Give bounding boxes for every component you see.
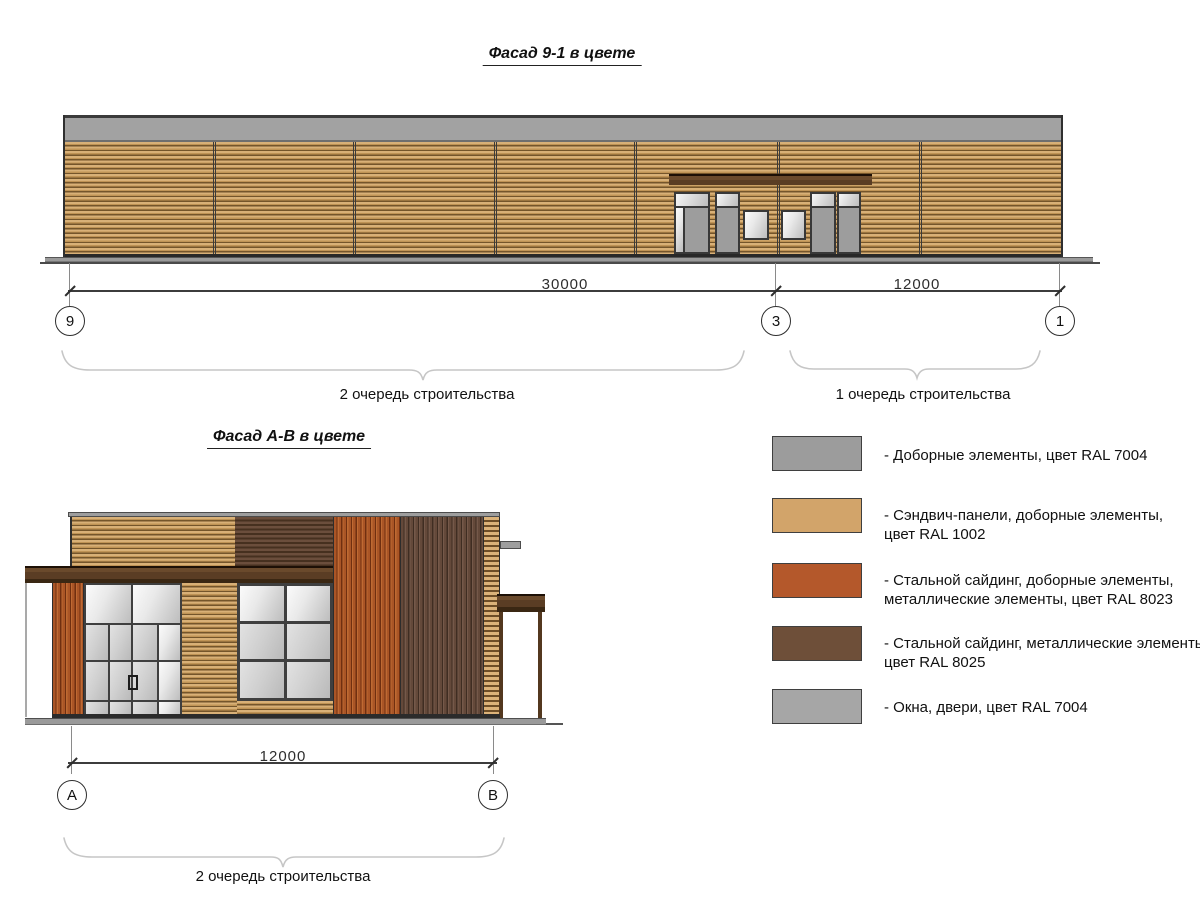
axis-bubble-3: 3 — [761, 306, 791, 336]
panel-joint — [213, 142, 216, 254]
phase-2-label: 2 очередь строительства — [153, 868, 413, 885]
axis-extension-line — [775, 263, 776, 306]
panel-joint — [919, 142, 922, 254]
axis-bubble-b: В — [478, 780, 508, 810]
axis-extension-line — [69, 263, 70, 306]
axis-bubble-a: А — [57, 780, 87, 810]
facade-ab-title: Фасад А-В в цвете — [207, 428, 371, 449]
tan-wall-strip — [182, 583, 237, 717]
glazing-pane — [86, 662, 108, 700]
legend-label: - Сэндвич-панели, доборные элементы, цве… — [884, 506, 1200, 544]
door-transom-glass — [676, 194, 708, 208]
entrance-door — [715, 192, 740, 254]
glazing-pane — [159, 662, 180, 700]
door-transom-glass — [717, 194, 738, 208]
legend-label: - Доборные элементы, цвет RAL 7004 — [884, 446, 1200, 465]
phase-2-brace — [62, 836, 506, 872]
window-pane — [240, 586, 284, 621]
phase-1-brace — [788, 349, 1042, 385]
ground-line — [40, 262, 1100, 264]
glazing-pane — [133, 625, 157, 660]
glazing-pane — [86, 585, 131, 623]
axis-extension-line — [1059, 263, 1060, 306]
window-pane — [287, 624, 330, 659]
axis-extension-line — [493, 726, 494, 774]
axis-extension-line — [71, 726, 72, 774]
panel-joint — [494, 142, 497, 254]
phase-2-label: 2 очередь строительства — [297, 386, 557, 403]
legend-swatch-ral1002 — [772, 498, 862, 533]
facade-ab-drawing — [0, 500, 600, 740]
legend-swatch-ral7004 — [772, 436, 862, 471]
window-pane — [240, 662, 284, 698]
orange-pilaster — [52, 583, 84, 717]
brown-fascia-band — [235, 517, 333, 566]
entrance-canopy — [25, 566, 333, 583]
glazing-pane — [86, 625, 108, 660]
glazing-pane — [159, 625, 180, 660]
tan-fascia-band — [70, 517, 235, 566]
porch-post — [499, 612, 503, 718]
small-window — [743, 210, 769, 240]
dark-brown-siding-section — [400, 517, 483, 717]
facade-91-title: Фасад 9-1 в цвете — [483, 45, 642, 66]
axis-bubble-1: 1 — [1045, 306, 1075, 336]
legend-label: - Стальной сайдинг, доборные элементы, м… — [884, 571, 1200, 609]
large-window — [237, 583, 333, 701]
gray-band-ral7004 — [65, 118, 1061, 142]
legend-swatch-ral8023 — [772, 563, 862, 598]
axis-bubble-9: 9 — [55, 306, 85, 336]
phase-2-brace — [60, 349, 746, 385]
legend-swatch-ral8025 — [772, 626, 862, 661]
entrance-door — [674, 192, 710, 254]
legend-label: - Стальной сайдинг, металлические элемен… — [884, 634, 1200, 672]
glazing-pane — [110, 625, 131, 660]
legend-label: - Окна, двери, цвет RAL 7004 — [884, 698, 1200, 717]
door-handle — [128, 675, 138, 690]
dim-label-12000: 12000 — [260, 748, 307, 765]
glazing-pane — [133, 585, 180, 623]
small-window — [781, 210, 806, 240]
window-pane — [287, 662, 330, 698]
ground-line — [546, 723, 563, 725]
door-sidelight — [676, 208, 685, 252]
canopy-post — [25, 583, 27, 717]
entrance-canopy — [669, 174, 872, 185]
ground-strip — [25, 718, 546, 725]
porch-post — [538, 612, 542, 718]
drawing-canvas: Фасад 9-1 в цвете — [0, 0, 1200, 900]
porch-canopy — [497, 594, 545, 612]
door-transom-glass — [839, 194, 859, 208]
window-pane — [240, 624, 284, 659]
corner-trim-ladder — [483, 517, 500, 717]
panel-joint — [353, 142, 356, 254]
window-pane — [287, 586, 330, 621]
dim-label-12000: 12000 — [894, 276, 941, 293]
facade-91-drawing — [63, 115, 1063, 258]
orange-siding-section — [333, 517, 400, 717]
panel-joint — [634, 142, 637, 254]
glazed-entrance — [84, 583, 182, 718]
door-transom-glass — [812, 194, 834, 208]
panel-joint-axis-3 — [777, 142, 780, 254]
entrance-door — [837, 192, 861, 254]
gutter-projection — [500, 541, 521, 549]
dim-label-30000: 30000 — [542, 276, 589, 293]
phase-1-label: 1 очередь строительства — [793, 386, 1053, 403]
legend-swatch-windows — [772, 689, 862, 724]
entrance-door — [810, 192, 836, 254]
